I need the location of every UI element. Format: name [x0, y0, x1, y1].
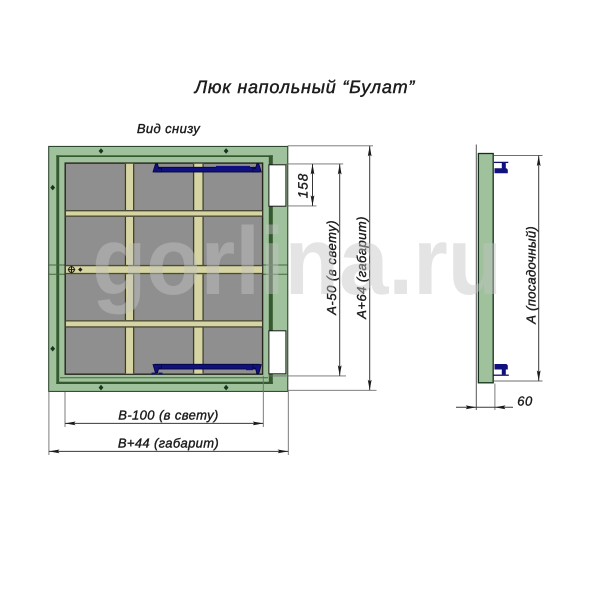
svg-text:Люк напольный “Булат”: Люк напольный “Булат”: [194, 77, 416, 97]
svg-text:gorlina.ru: gorlina.ru: [92, 208, 502, 315]
svg-text:А (посадочный): А (посадочный): [524, 226, 539, 325]
svg-text:Вид снизу: Вид снизу: [137, 121, 201, 136]
svg-text:60: 60: [517, 394, 533, 409]
svg-text:158: 158: [296, 173, 311, 199]
svg-text:В+44 (габарит): В+44 (габарит): [118, 436, 219, 451]
svg-text:В-100 (в свету): В-100 (в свету): [118, 408, 219, 423]
